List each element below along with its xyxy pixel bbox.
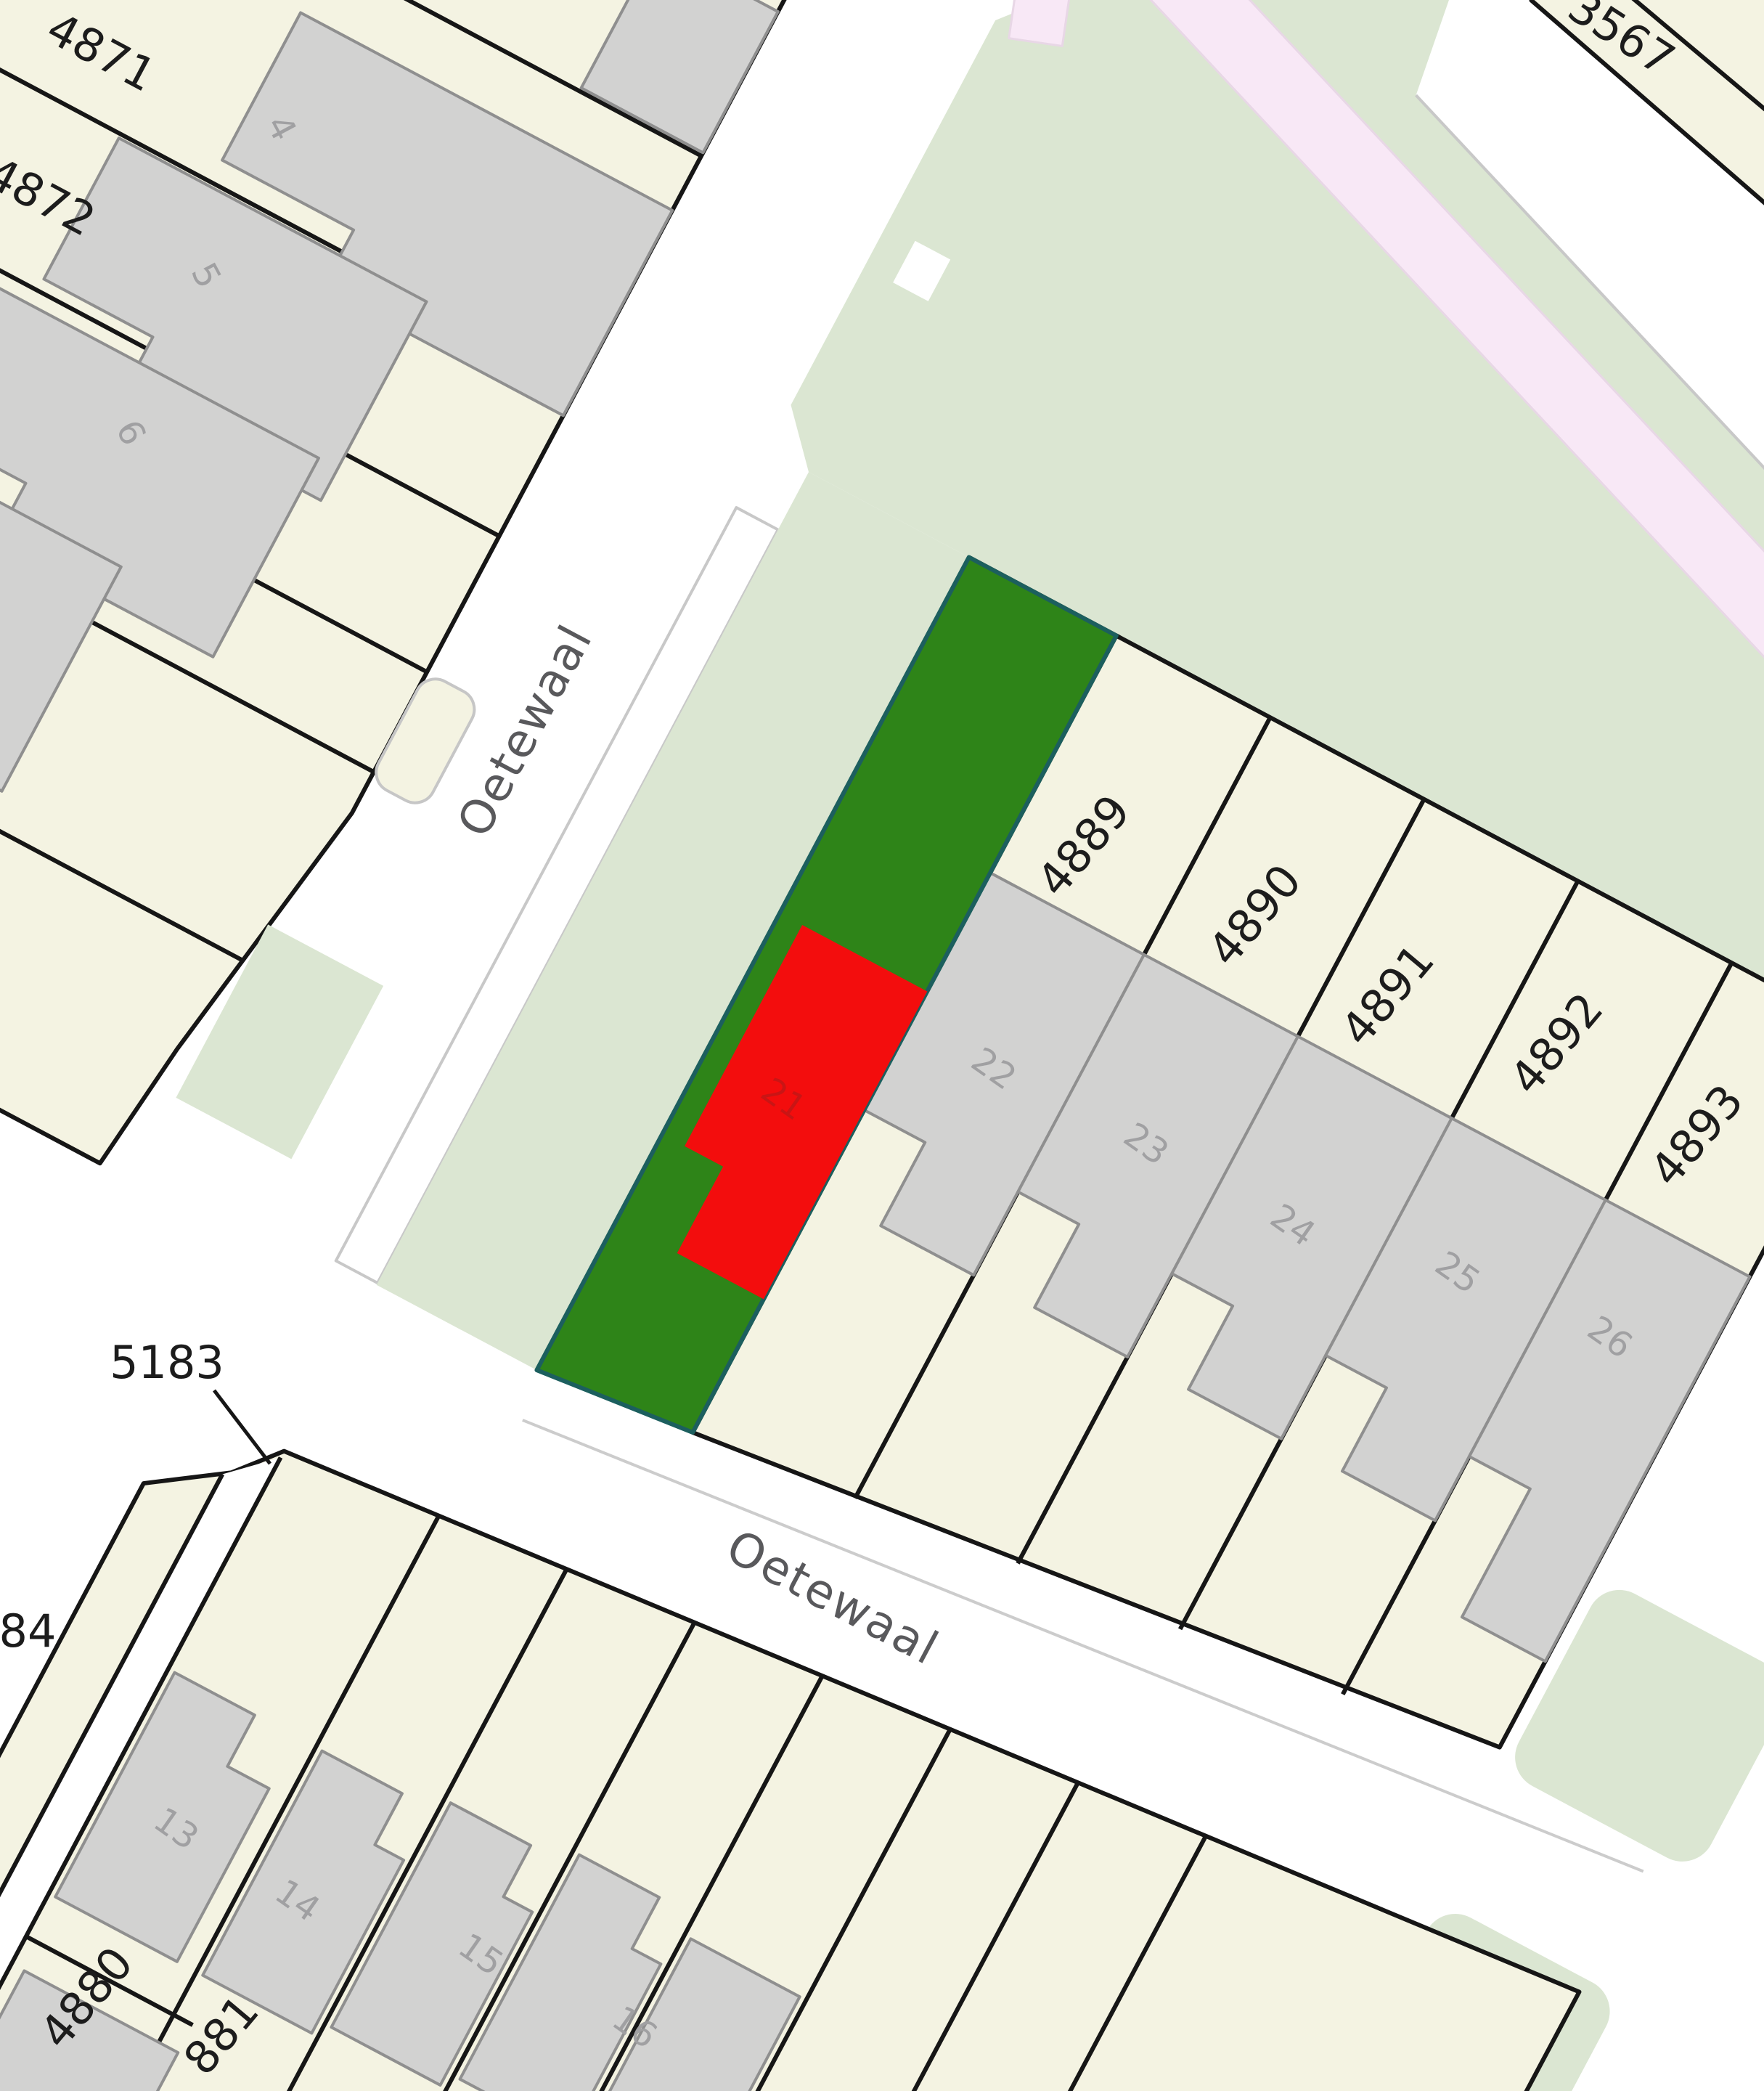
parcel-label-5184-partial: 84 bbox=[0, 1605, 56, 1658]
map-canvas[interactable]: 21 4871 4872 bbox=[0, 0, 1764, 2091]
parcel-label-5183: 5183 bbox=[110, 1336, 224, 1389]
cadastral-map: 21 4871 4872 bbox=[0, 0, 1764, 2091]
